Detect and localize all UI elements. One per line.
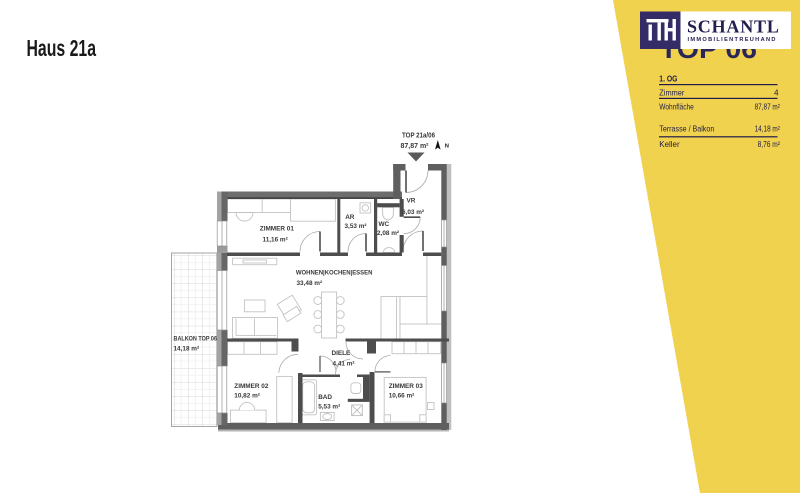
svg-text:ZIMMER 01: ZIMMER 01 xyxy=(260,226,295,233)
svg-text:2,08 m²: 2,08 m² xyxy=(377,230,399,237)
svg-text:Terrasse / Balkon: Terrasse / Balkon xyxy=(659,125,714,134)
svg-text:WC: WC xyxy=(379,221,390,228)
svg-text:WOHNEN|KOCHEN|ESSEN: WOHNEN|KOCHEN|ESSEN xyxy=(296,270,373,277)
svg-text:Haus 21a: Haus 21a xyxy=(27,35,97,61)
svg-text:1. OG: 1. OG xyxy=(659,73,677,83)
svg-text:14,18 m²: 14,18 m² xyxy=(174,346,200,353)
svg-text:ZIMMER 03: ZIMMER 03 xyxy=(389,383,424,390)
svg-text:Zimmer: Zimmer xyxy=(659,89,684,98)
svg-text:10,66 m²: 10,66 m² xyxy=(389,393,415,400)
svg-text:AR: AR xyxy=(345,214,355,221)
svg-text:ZIMMER 02: ZIMMER 02 xyxy=(234,383,269,390)
svg-text:DIELE: DIELE xyxy=(332,350,352,357)
svg-text:14,18 m²: 14,18 m² xyxy=(755,125,781,134)
svg-text:IMMOBILIENTREUHAND: IMMOBILIENTREUHAND xyxy=(688,37,777,43)
svg-text:10,82 m²: 10,82 m² xyxy=(234,393,260,400)
svg-text:4: 4 xyxy=(774,89,779,98)
svg-text:4,41 m²: 4,41 m² xyxy=(333,361,355,368)
svg-text:BALKON TOP 06: BALKON TOP 06 xyxy=(174,336,218,343)
svg-text:VR: VR xyxy=(407,198,416,205)
svg-text:N: N xyxy=(445,144,449,150)
svg-text:87,87 m²: 87,87 m² xyxy=(755,103,781,112)
svg-text:11,16 m²: 11,16 m² xyxy=(263,237,288,244)
svg-text:8,76 m²: 8,76 m² xyxy=(758,140,781,149)
svg-text:3,53 m²: 3,53 m² xyxy=(345,223,367,230)
svg-text:33,48 m²: 33,48 m² xyxy=(297,280,323,287)
svg-text:SCHANTL: SCHANTL xyxy=(687,17,780,37)
svg-text:5,53 m²: 5,53 m² xyxy=(318,404,340,411)
svg-text:BAD: BAD xyxy=(318,394,332,401)
svg-text:Wohnfläche: Wohnfläche xyxy=(659,103,694,112)
svg-text:87,87 m²: 87,87 m² xyxy=(400,143,429,150)
svg-text:6,03 m²: 6,03 m² xyxy=(402,209,424,216)
svg-text:TOP 21a/06: TOP 21a/06 xyxy=(402,133,435,140)
svg-text:Keller: Keller xyxy=(659,140,680,149)
